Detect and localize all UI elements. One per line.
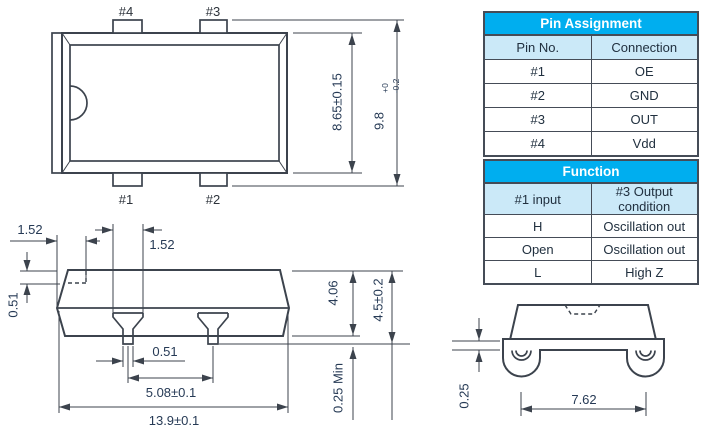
arrow-left-icon: [521, 406, 532, 413]
table-row: H Oscillation out: [484, 215, 698, 238]
connection-cell: GND: [591, 84, 698, 108]
arrow-right-icon: [46, 238, 57, 245]
table-row: #3 OUT: [484, 108, 698, 132]
dim-lid-inset-lines: [10, 235, 100, 309]
arrow-right-icon: [102, 227, 113, 234]
input-header: #1 input: [484, 183, 591, 215]
top-view-bevels: [62, 33, 287, 173]
dim-side-body-height-lines: [292, 271, 403, 336]
dim-overall-length: 13.9±0.1: [149, 413, 200, 428]
top-view: #4 #3 #1 #2 8.65±0.15 9.8 +0 -0.2: [52, 4, 404, 207]
dim-tol-plus: +0: [380, 83, 390, 93]
arrow-up-icon: [24, 284, 31, 295]
arrow-up-icon: [350, 348, 357, 359]
dim-tol-minus: -0.2: [391, 78, 401, 93]
end-hidden-notch: [565, 305, 600, 314]
arrow-down-icon: [394, 174, 401, 185]
pad-4: [113, 20, 142, 33]
lead-1: [113, 313, 143, 344]
pin-no-header: Pin No.: [484, 35, 591, 60]
table-row: #1 OE: [484, 60, 698, 84]
dim-lead-span: 7.62: [571, 392, 596, 407]
table-row: Open Oscillation out: [484, 238, 698, 261]
pin4-label: #4: [119, 4, 133, 19]
table-row: L High Z: [484, 261, 698, 285]
side-view: 1.52 1.52 0.51 0.51 5.08±0.1: [6, 222, 410, 428]
end-body: [510, 305, 656, 340]
arrow-right-icon: [635, 406, 646, 413]
pin-no-cell: #4: [484, 132, 591, 157]
arrow-left-icon: [128, 375, 139, 382]
dim-lid-thickness-lines: [20, 252, 60, 303]
pin2-label: #2: [206, 192, 220, 207]
output-condition-header: #3 Output condition: [591, 183, 698, 215]
end-view: 0.25 7.62: [452, 305, 664, 416]
dim-lid-inset: 1.52: [17, 222, 42, 237]
output-cell: Oscillation out: [591, 215, 698, 238]
pin3-label: #3: [206, 4, 220, 19]
arrow-up-icon: [349, 34, 356, 45]
arrow-down-icon: [349, 161, 356, 172]
pad-3: [200, 20, 227, 33]
connection-cell: OE: [591, 60, 698, 84]
dim-pin-tip-width: 0.51: [152, 344, 177, 359]
arrow-left-icon: [86, 238, 97, 245]
arrow-right-icon: [112, 358, 123, 365]
arrow-right-icon: [202, 375, 213, 382]
table-row: #2 GND: [484, 84, 698, 108]
pad-1: [113, 173, 142, 186]
connection-header: Connection: [591, 35, 698, 60]
pad-2: [200, 173, 227, 186]
function-table: Function #1 input #3 Output condition H …: [483, 159, 699, 285]
input-cell: Open: [484, 238, 591, 261]
datasheet-package-drawing: #4 #3 #1 #2 8.65±0.15 9.8 +0 -0.2: [0, 0, 720, 438]
arrow-down-icon: [24, 260, 31, 271]
connection-cell: OUT: [591, 108, 698, 132]
top-view-outer-body: [62, 33, 287, 173]
function-title: Function: [484, 160, 698, 183]
dim-pitch: 5.08±0.1: [146, 385, 197, 400]
arrow-left-icon: [143, 227, 154, 234]
dim-side-body-height: 4.06: [326, 280, 341, 305]
dim-body-height: 8.65±0.15: [330, 73, 345, 131]
lead-2: [198, 313, 228, 344]
arrow-right-icon: [277, 404, 288, 411]
arrow-down-icon: [389, 332, 396, 343]
arrow-down-icon: [476, 329, 483, 340]
arrow-left-icon: [133, 358, 144, 365]
pin-no-cell: #1: [484, 60, 591, 84]
dim-pin-top-width: 1.52: [149, 237, 174, 252]
hidden-lid-edge: [68, 271, 86, 283]
output-cell: Oscillation out: [591, 238, 698, 261]
arrow-up-icon: [476, 351, 483, 362]
pin-assignment-table: Pin Assignment Pin No. Connection #1 OE …: [483, 11, 699, 157]
arrow-up-icon: [350, 272, 357, 283]
arrow-down-icon: [350, 324, 357, 335]
pin-assignment-title: Pin Assignment: [484, 12, 698, 35]
dim-lid-thickness: 0.51: [6, 292, 21, 317]
pin1-index-notch: [70, 86, 87, 120]
dim-lead-thickness-lines: [452, 318, 500, 372]
input-cell: L: [484, 261, 591, 285]
dim-body-height-lines: [293, 33, 362, 173]
dim-side-overall-height: 4.5±0.2: [371, 278, 386, 321]
dim-standoff: 0.25 Min: [331, 363, 346, 413]
output-cell: High Z: [591, 261, 698, 285]
top-view-inner-lid: [70, 45, 279, 161]
table-row: #4 Vdd: [484, 132, 698, 157]
dim-overall-height: 9.8: [372, 112, 387, 130]
arrow-up-icon: [394, 21, 401, 32]
arrow-left-icon: [59, 404, 70, 411]
top-view-left-seam: [52, 33, 62, 173]
connection-cell: Vdd: [591, 132, 698, 157]
pin-no-cell: #2: [484, 84, 591, 108]
pin-no-cell: #3: [484, 108, 591, 132]
pin1-label: #1: [119, 192, 133, 207]
side-body: [57, 270, 289, 336]
arrow-up-icon: [389, 272, 396, 283]
input-cell: H: [484, 215, 591, 238]
dim-lead-thickness: 0.25: [457, 383, 472, 408]
